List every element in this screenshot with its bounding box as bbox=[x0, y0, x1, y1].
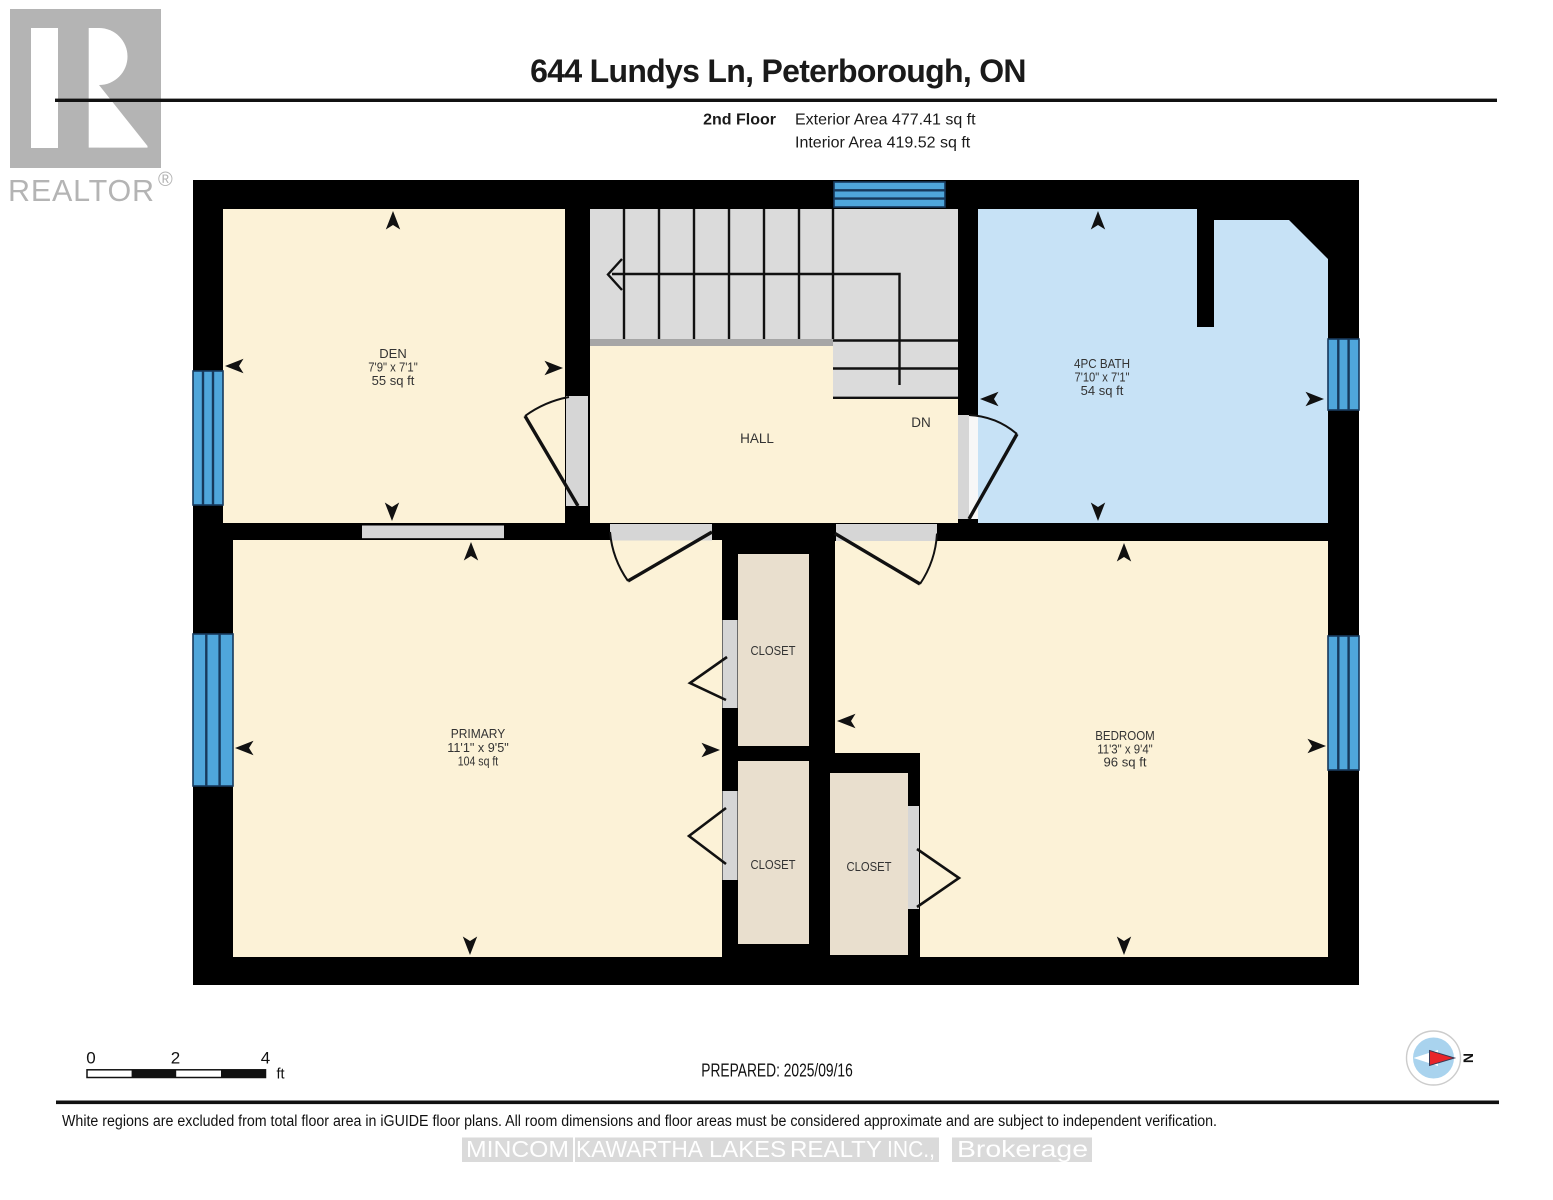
svg-text:54 sq ft: 54 sq ft bbox=[1081, 383, 1124, 398]
svg-text:96 sq ft: 96 sq ft bbox=[1104, 755, 1147, 770]
svg-text:2: 2 bbox=[171, 1049, 180, 1068]
svg-text:White regions are excluded fro: White regions are excluded from total fl… bbox=[62, 1113, 1217, 1130]
svg-text:PREPARED: 2025/09/16: PREPARED: 2025/09/16 bbox=[701, 1061, 853, 1081]
svg-text:CLOSET: CLOSET bbox=[751, 857, 796, 872]
svg-text:PRIMARY: PRIMARY bbox=[451, 726, 506, 741]
svg-text:ft: ft bbox=[277, 1067, 285, 1083]
svg-text:0: 0 bbox=[86, 1049, 95, 1068]
svg-text:2nd Floor: 2nd Floor bbox=[703, 112, 776, 129]
svg-text:HALL: HALL bbox=[740, 431, 774, 446]
svg-text:104 sq ft: 104 sq ft bbox=[458, 754, 499, 769]
svg-text:LAKES: LAKES bbox=[709, 1136, 786, 1162]
svg-text:REALTOR: REALTOR bbox=[8, 174, 155, 208]
svg-text:Exterior Area 477.41 sq ft: Exterior Area 477.41 sq ft bbox=[795, 112, 976, 129]
svg-text:Interior Area 419.52 sq ft: Interior Area 419.52 sq ft bbox=[795, 135, 971, 152]
svg-text:644 Lundys Ln, Peterborough, O: 644 Lundys Ln, Peterborough, ON bbox=[530, 53, 1026, 89]
svg-text:REALTY: REALTY bbox=[790, 1136, 882, 1162]
svg-text:KAWARTHA: KAWARTHA bbox=[576, 1136, 704, 1162]
svg-text:CLOSET: CLOSET bbox=[751, 643, 796, 658]
svg-text:55 sq ft: 55 sq ft bbox=[372, 373, 415, 388]
svg-text:®: ® bbox=[158, 169, 173, 191]
svg-text:4: 4 bbox=[261, 1049, 270, 1068]
svg-text:MINCOM: MINCOM bbox=[466, 1136, 569, 1162]
svg-text:DN: DN bbox=[911, 415, 931, 430]
svg-text:CLOSET: CLOSET bbox=[847, 859, 892, 874]
svg-text:N: N bbox=[1461, 1053, 1477, 1063]
svg-text:Brokerage: Brokerage bbox=[957, 1136, 1088, 1162]
svg-text:INC.,: INC., bbox=[887, 1136, 935, 1162]
